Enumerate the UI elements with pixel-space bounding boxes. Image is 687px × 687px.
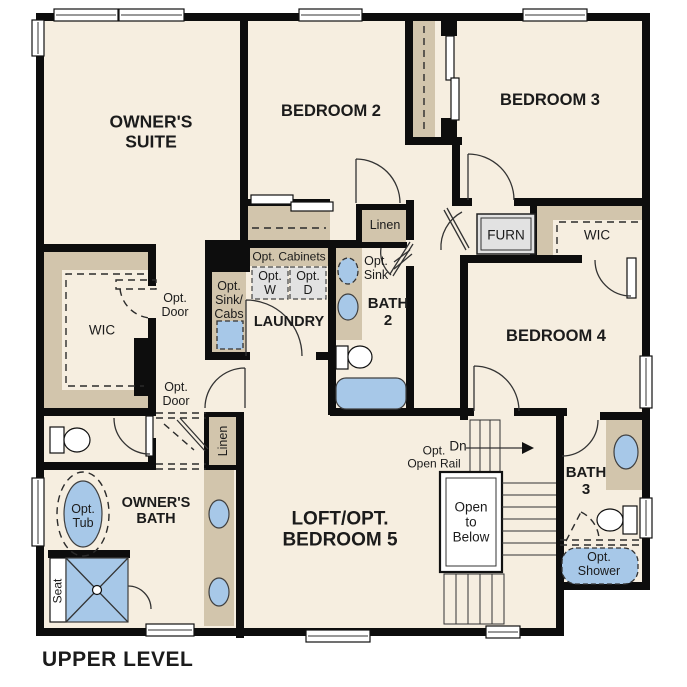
closet-label-linen-hall: Linen: [370, 218, 401, 232]
annotation-opt-dryer: Opt. D: [296, 269, 320, 297]
annotation-opt-shower: Opt. Shower: [578, 550, 620, 578]
annotation-opt-door-wic: Opt. Door: [161, 291, 188, 319]
room-label-bedroom3: BEDROOM 3: [500, 91, 600, 109]
room-label-owners-bath: OWNER'S BATH: [122, 495, 191, 527]
annotation-opt-sink-cabs: Opt. Sink/ Cabs: [214, 279, 243, 321]
annotation-opt-sink: Opt. Sink: [364, 254, 388, 282]
furnace-label: FURN: [487, 227, 525, 242]
room-label-owners-suite: OWNER'S SUITE: [110, 112, 193, 151]
annotation-opt-cabinets: Opt. Cabinets: [252, 250, 325, 263]
annotation-seat: Seat: [51, 579, 64, 604]
room-label-wic-left: WIC: [89, 322, 115, 337]
room-label-wic-right: WIC: [584, 227, 610, 242]
room-label-bedroom2: BEDROOM 2: [281, 102, 381, 120]
annotation-opt-open-rail: Opt. Open Rail: [407, 445, 460, 472]
room-label-laundry: LAUNDRY: [254, 314, 324, 330]
annotation-opt-washer: Opt. W: [258, 269, 282, 297]
room-label-bath2: BATH 2: [368, 296, 409, 330]
floor-plan: OWNER'S SUITE BEDROOM 2 BEDROOM 3 BEDROO…: [0, 0, 687, 687]
annotation-opt-door-hall: Opt. Door: [162, 380, 189, 408]
room-label-loft: LOFT/OPT. BEDROOM 5: [282, 509, 397, 552]
room-label-bath3: BATH 3: [566, 465, 607, 499]
annotation-opt-tub: Opt. Tub: [71, 502, 95, 530]
closet-label-linen-bath: Linen: [216, 426, 230, 457]
annotation-open-to-below: Open to Below: [453, 499, 490, 544]
page-title: UPPER LEVEL: [42, 648, 193, 672]
room-label-bedroom4: BEDROOM 4: [506, 327, 606, 345]
